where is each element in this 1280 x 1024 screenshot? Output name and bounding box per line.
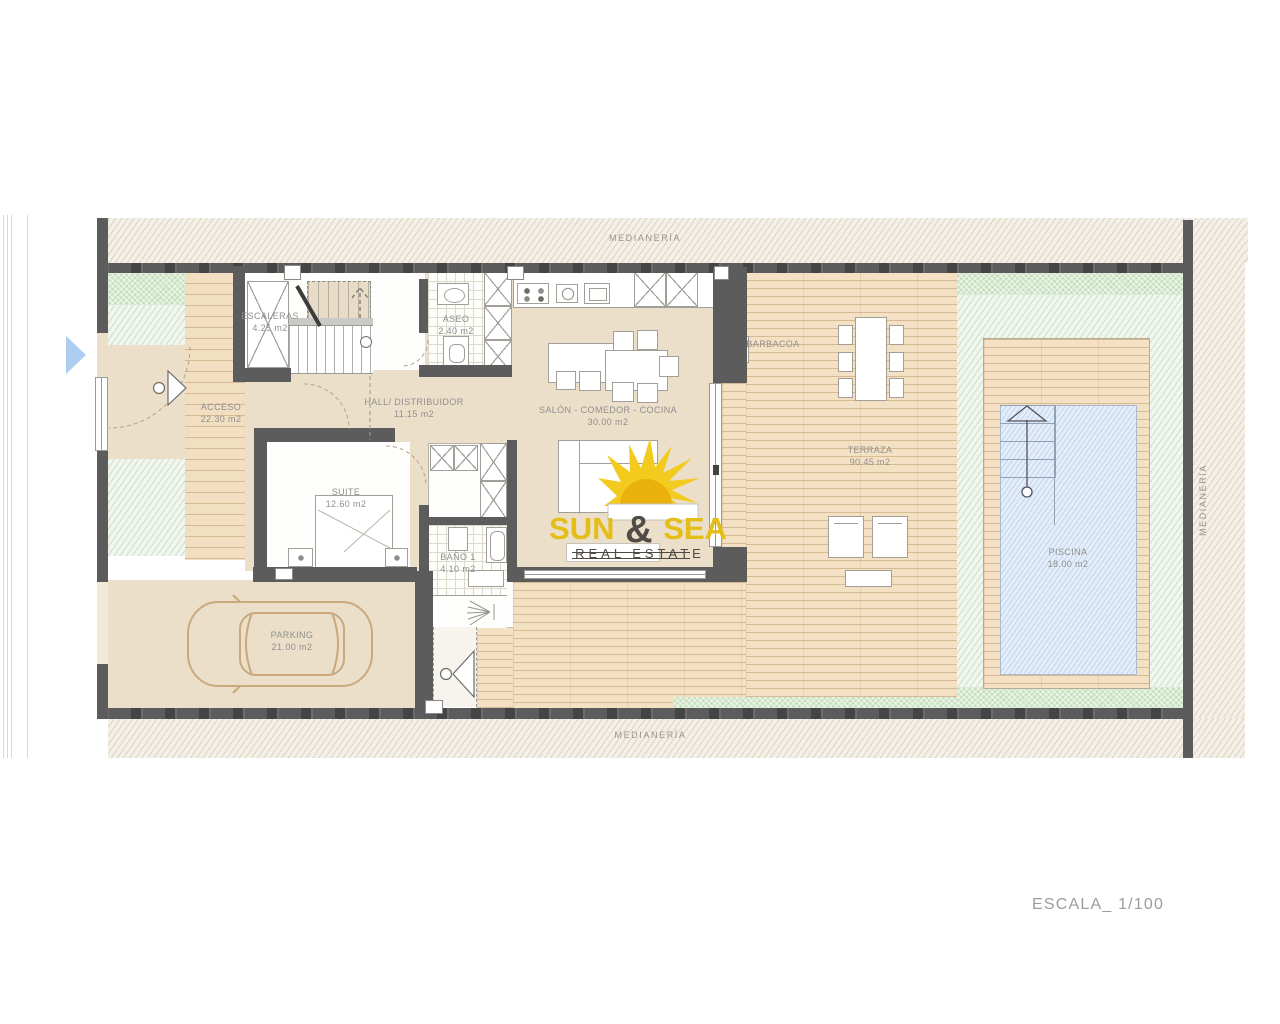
room-area: 21.00 m2 (252, 641, 332, 653)
room-name: SALÓN - COMEDOR - COCINA (523, 404, 693, 416)
medianeria-label-bottom: MEDIANERÍA (108, 730, 1193, 740)
logo-ampersand: & (623, 509, 654, 551)
bed-fold-lines (318, 510, 390, 552)
logo-subtitle: REAL ESTATE (556, 546, 724, 561)
scale-label: ESCALA_ 1/100 (1032, 896, 1164, 914)
room-name: TERRAZA (830, 444, 910, 456)
room-area: 4.10 m2 (418, 563, 498, 575)
room-name: BAÑO 1 (418, 551, 498, 563)
room-area: 22.30 m2 (181, 413, 261, 425)
entry-arrow-icon (66, 336, 86, 374)
logo-word-sun: SUN (549, 511, 614, 546)
medianeria-label-top: MEDIANERÍA (97, 233, 1193, 243)
room-label-aseo: ASEO 2.40 m2 (416, 313, 496, 337)
room-name: SUITE (306, 486, 386, 498)
room-area: 4.25 m2 (230, 322, 310, 334)
room-label-parking: PARKING 21.00 m2 (252, 629, 332, 653)
room-area: 11.15 m2 (344, 408, 484, 420)
room-area: 90.45 m2 (830, 456, 910, 468)
room-name: PISCINA (1028, 546, 1108, 558)
room-name: ACCESO (181, 401, 261, 413)
pool-ladder-arrow (1008, 406, 1046, 497)
room-area: 18.00 m2 (1028, 558, 1108, 570)
room-area: 2.40 m2 (416, 325, 496, 337)
room-name: ASEO (416, 313, 496, 325)
entry-door-symbol (154, 371, 187, 405)
room-area: 30.00 m2 (523, 416, 693, 428)
room-label-barbacoa: BARBACOA (733, 338, 813, 350)
stairs-direction-arrow (352, 288, 368, 318)
room-label-bano: BAÑO 1 4.10 m2 (418, 551, 498, 575)
room-label-suite: SUITE 12.60 m2 (306, 486, 386, 510)
room-label-piscina: PISCINA 18.00 m2 (1028, 546, 1108, 570)
room-name: PARKING (252, 629, 332, 641)
room-label-acceso: ACCESO 22.30 m2 (181, 401, 261, 425)
room-label-escaleras: ESCALERAS 4.25 m2 (230, 310, 310, 334)
room-name: BARBACOA (733, 338, 813, 350)
shower-spray-icon (467, 601, 494, 625)
room-label-salon: SALÓN - COMEDOR - COCINA 30.00 m2 (523, 404, 693, 428)
room-label-hall: HALL/ DISTRIBUIDOR 11.15 m2 (344, 396, 484, 420)
room-name: HALL/ DISTRIBUIDOR (344, 396, 484, 408)
logo-word-sea: SEA (663, 511, 727, 546)
room-area: 12.60 m2 (306, 498, 386, 510)
walkway-door-symbol (441, 651, 475, 697)
room-label-terraza: TERRAZA 90.45 m2 (830, 444, 910, 468)
medianeria-label-right: MEDIANERÍA (1198, 420, 1238, 580)
floor-plan-canvas: MEDIANERÍA MEDIANERÍA MEDIANERÍA ESCALER… (0, 0, 1280, 1024)
room-name: ESCALERAS (230, 310, 310, 322)
logo-wordmark: SUN & SEA (548, 511, 728, 549)
